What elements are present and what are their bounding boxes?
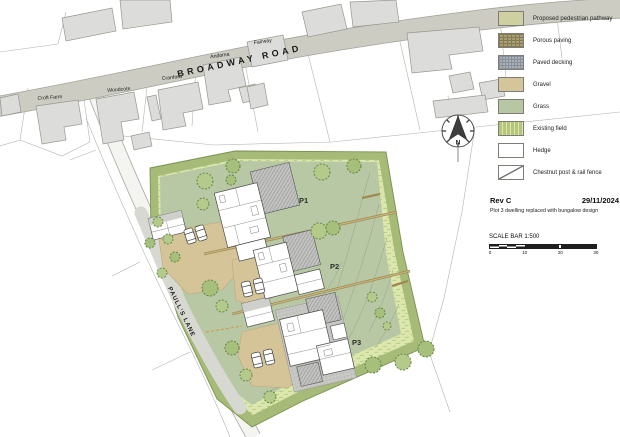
legend-item-field: Existing field bbox=[498, 121, 612, 136]
grass-swatch bbox=[498, 99, 524, 114]
legend-item-hedge: Hedge bbox=[498, 143, 612, 158]
porous-paving-swatch bbox=[498, 33, 524, 48]
plot-label-p1: P1 bbox=[299, 196, 308, 205]
legend-label: Proposed pedestrian pathway bbox=[533, 16, 612, 22]
scale-segment bbox=[507, 245, 516, 248]
legend-label: Chestnut post & rail fence bbox=[533, 170, 602, 176]
scale-tick: 0 bbox=[489, 250, 492, 255]
site-plan-drawing: BROADWAY ROAD PAULL'S LANE Croft Farm Wo… bbox=[0, 0, 620, 437]
plot-label-p3: P3 bbox=[352, 338, 361, 347]
scale-segment bbox=[561, 245, 596, 248]
scale-tick: 30 bbox=[593, 250, 598, 255]
scale-bar: SCALE BAR 1:500 0 10 20 30 bbox=[489, 234, 597, 257]
pathway-swatch bbox=[498, 11, 524, 26]
plot-label-p2: P2 bbox=[330, 262, 339, 271]
hedge-swatch bbox=[498, 143, 524, 158]
legend: Proposed pedestrian pathway Porous pavin… bbox=[498, 11, 612, 187]
revision-block: Rev C 29/11/2024 Plot 3 dwelling replace… bbox=[490, 196, 619, 214]
scale-bar-graphic bbox=[489, 244, 597, 249]
scale-bar-title: SCALE BAR 1:500 bbox=[489, 234, 597, 240]
fence-swatch bbox=[498, 165, 524, 180]
revision-date: 29/11/2024 bbox=[582, 196, 619, 205]
legend-item-porous: Porous paving bbox=[498, 33, 612, 48]
revision-note: Plot 3 dwelling replaced with bungalow d… bbox=[490, 208, 619, 214]
north-arrow: N bbox=[442, 115, 474, 162]
legend-item-fence: Chestnut post & rail fence bbox=[498, 165, 612, 180]
north-arrow-n-label: N bbox=[456, 140, 461, 147]
woodcote-label: Woodcote bbox=[107, 86, 131, 94]
scale-tick: 20 bbox=[558, 250, 563, 255]
legend-label: Porous paving bbox=[533, 38, 571, 44]
legend-label: Gravel bbox=[533, 82, 551, 88]
legend-item-pathway: Proposed pedestrian pathway bbox=[498, 11, 612, 26]
revision-label: Rev C bbox=[490, 196, 511, 205]
legend-label: Existing field bbox=[533, 126, 567, 132]
scale-segment bbox=[490, 245, 499, 248]
legend-item-grass: Grass bbox=[498, 99, 612, 114]
scale-tick: 10 bbox=[522, 250, 527, 255]
legend-label: Hedge bbox=[533, 148, 551, 154]
scale-segment bbox=[525, 245, 559, 248]
legend-item-gravel: Gravel bbox=[498, 77, 612, 92]
gravel-swatch bbox=[498, 77, 524, 92]
existing-field-swatch bbox=[498, 121, 524, 136]
scale-bar-ticks: 0 10 20 30 bbox=[489, 250, 597, 257]
legend-label: Grass bbox=[533, 104, 549, 110]
legend-label: Paved decking bbox=[533, 60, 572, 66]
legend-item-decking: Paved decking bbox=[498, 55, 612, 70]
scale-segment bbox=[516, 245, 525, 248]
paved-decking-swatch bbox=[498, 55, 524, 70]
scale-segment bbox=[499, 245, 508, 248]
